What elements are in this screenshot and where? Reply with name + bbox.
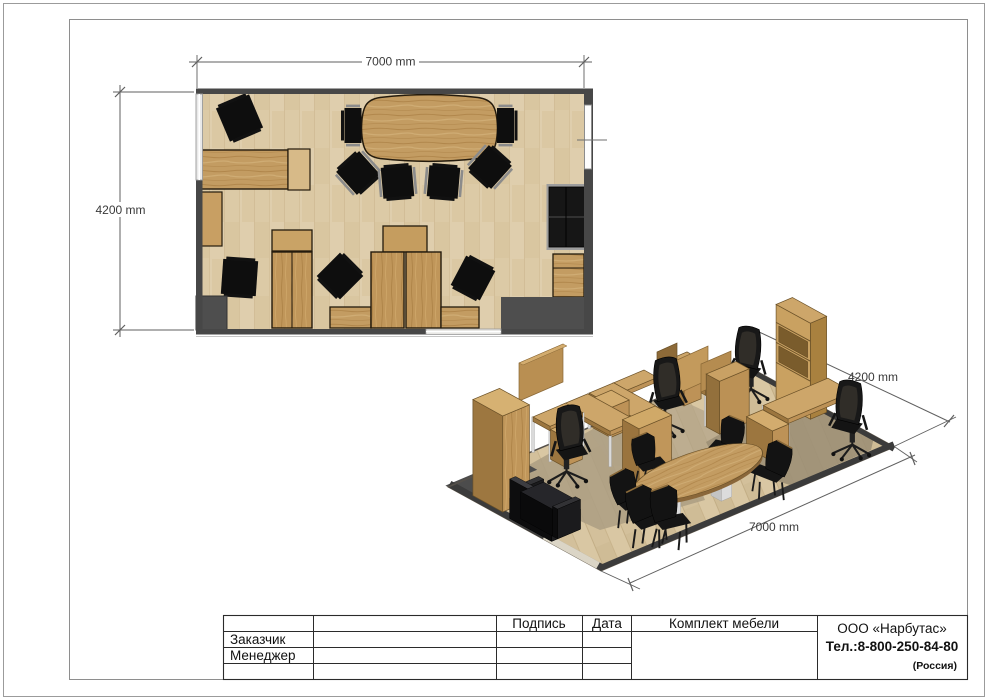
svg-text:Заказчик: Заказчик xyxy=(230,632,286,647)
svg-text:4200 mm: 4200 mm xyxy=(95,203,145,217)
svg-text:Тел.:8-800-250-84-80: Тел.:8-800-250-84-80 xyxy=(826,639,958,654)
svg-text:Подпись: Подпись xyxy=(512,616,565,631)
svg-text:7000 mm: 7000 mm xyxy=(365,55,415,69)
svg-text:7000 mm: 7000 mm xyxy=(749,520,799,534)
svg-text:Менеджер: Менеджер xyxy=(230,648,296,663)
svg-text:Комплект мебели: Комплект мебели xyxy=(669,616,779,631)
svg-text:(Россия): (Россия) xyxy=(913,660,957,672)
svg-text:ООО «Нарбутас»: ООО «Нарбутас» xyxy=(837,621,947,636)
svg-text:Дата: Дата xyxy=(592,616,622,631)
